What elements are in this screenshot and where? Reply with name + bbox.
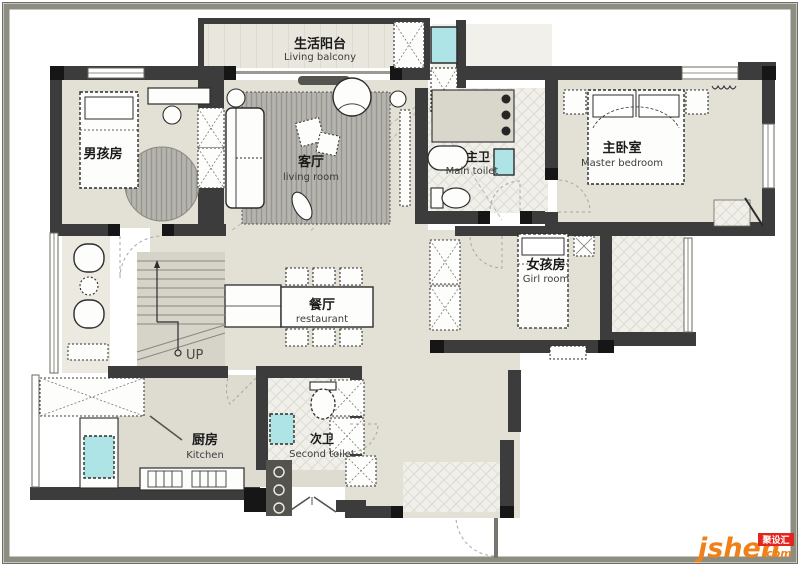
floor-lamp-icon [390, 91, 406, 107]
planter-box-icon [68, 344, 108, 360]
dining-label-en: restaurant [296, 314, 348, 325]
toilet-sink-icon [270, 414, 294, 444]
double-bed-icon [588, 90, 684, 184]
living-room-label-zh: 客厅 [298, 154, 324, 170]
floor-plan-page: 生活阳台 Living balcony 男孩房 [0, 0, 800, 566]
girl-label-zh: 女孩房 [526, 257, 565, 273]
living-balcony-label-zh: 生活阳台 [294, 36, 346, 52]
room-living: 客厅 living room [226, 78, 410, 224]
living-balcony-label-en: Living balcony [284, 52, 356, 63]
lounge-chair-icon [74, 300, 104, 328]
site-logo: jsheh .com 聚设汇 [694, 533, 794, 564]
balcony-sill [236, 71, 390, 74]
service-cabinet-icon [40, 378, 144, 416]
dining-label-zh: 餐厅 [308, 297, 335, 313]
master-label-zh: 主卧室 [602, 140, 641, 156]
cooktop-icon [140, 468, 244, 490]
main-toilet-label-en: Main toilet [446, 166, 499, 177]
window-service-left [32, 375, 39, 487]
floor-plan-canvas: 生活阳台 Living balcony 男孩房 [0, 0, 800, 566]
kitchen-sink-icon [84, 436, 114, 478]
kitchen-label-zh: 厨房 [192, 432, 218, 448]
small-table-icon [80, 277, 98, 295]
appliance-column [266, 460, 292, 516]
window-master-top [682, 67, 738, 79]
tv-console-icon [400, 110, 410, 206]
vanity-knobs-icon [502, 95, 511, 136]
wardrobe-icon [198, 108, 224, 188]
living-room-label-en: living room [283, 172, 339, 183]
window-bay-right [684, 238, 692, 332]
window-boy-top [88, 68, 144, 78]
armchair-icon [333, 78, 371, 116]
low-cabinet-icon [550, 346, 586, 359]
logo-tld-text: .com [762, 547, 792, 560]
toilet-icon [310, 382, 336, 419]
second-toilet-label-en: Second toilet [289, 449, 355, 460]
side-table-icon [227, 89, 245, 107]
logo-badge-text: 聚设汇 [761, 534, 789, 546]
master-label-en: Master bedroom [581, 158, 663, 169]
up-label: UP [186, 348, 204, 363]
utility-sink-icon [431, 27, 457, 63]
lounge-chair-icon [74, 244, 104, 272]
plant-stand-icon [574, 236, 594, 256]
window-master-right [763, 124, 774, 188]
girl-label-en: Girl room [523, 274, 569, 285]
window-side-balcony [50, 233, 58, 373]
washer-box-icon [394, 22, 424, 68]
second-toilet-label-zh: 次卫 [310, 431, 334, 446]
boy-room-label-zh: 男孩房 [83, 146, 122, 162]
kitchen-label-en: Kitchen [186, 450, 224, 461]
toilet-icon [431, 188, 470, 208]
main-toilet-label-zh: 主卫 [466, 149, 490, 164]
sofa-icon [226, 108, 264, 208]
bed-icon [80, 92, 138, 188]
